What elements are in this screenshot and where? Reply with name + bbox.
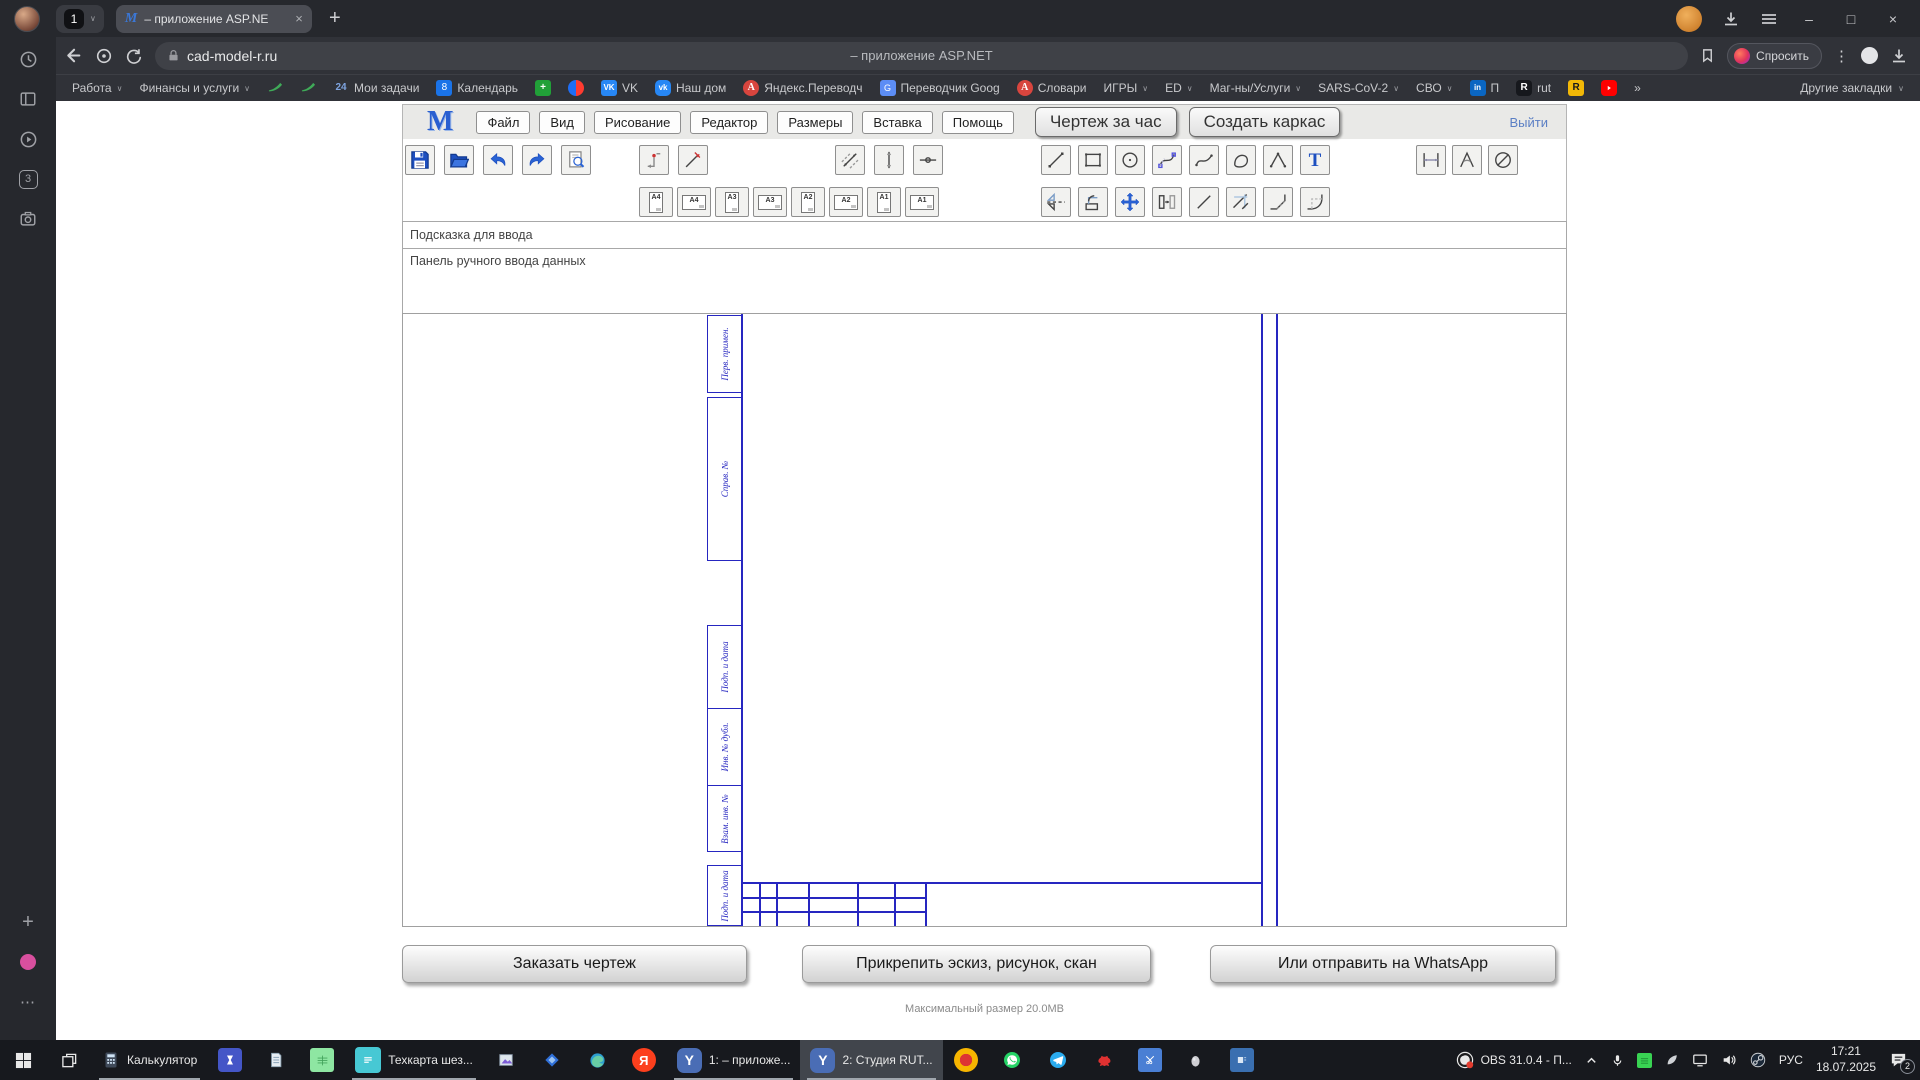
chevron-down-icon: ∨ (90, 14, 96, 23)
menu-редактор[interactable]: Редактор (690, 111, 768, 134)
tray-microphone-icon[interactable] (1611, 1054, 1624, 1067)
sidebar-panels-icon[interactable] (19, 85, 37, 113)
bookmark-item[interactable]: VKVK (601, 80, 638, 96)
bookmark-label: SARS-CoV-2 (1318, 81, 1388, 95)
tray-volume-icon[interactable] (1721, 1052, 1737, 1068)
taskbar-sheet-green-button[interactable] (299, 1040, 345, 1080)
bookmark-item[interactable]: + (535, 80, 551, 96)
taskbar-ybrowser-window[interactable]: Y2: Студия RUT... (800, 1040, 942, 1080)
bookmark-label: ED (1165, 81, 1182, 95)
undo-icon[interactable] (483, 145, 513, 175)
bookmark-label: Мои задачи (354, 81, 419, 95)
bookmark-flag-icon[interactable] (1700, 48, 1715, 63)
frame-left-column-cell: Взам. инв. № (707, 785, 743, 852)
circle-icon[interactable] (1115, 145, 1145, 175)
green-swoosh-icon (300, 80, 316, 96)
save-icon[interactable] (405, 145, 435, 175)
calendar-icon: 8 (436, 80, 452, 96)
axis-vertical-icon[interactable] (874, 145, 904, 175)
taskbar-task-view-button[interactable] (46, 1040, 92, 1080)
order-drawing-button[interactable]: Заказать чертеж (402, 945, 747, 983)
li-icon: in (1470, 80, 1486, 96)
site-favicon-icon: M (125, 12, 137, 26)
system-tray: OBS 31.0.4 - П... РУС 17:21 18.07.2025 2 (1456, 1040, 1920, 1080)
edit-tools (1041, 187, 1330, 217)
new-tab-button[interactable]: + (322, 7, 348, 30)
menu-hamburger-icon[interactable] (1760, 10, 1778, 28)
vk2-icon: vk (655, 80, 671, 96)
app-action-buttons: Чертеж за часСоздать каркас (1023, 107, 1340, 137)
url-field[interactable]: cad-model-r.ru – приложение ASP.NET (155, 42, 1688, 70)
vk-icon: VK (601, 80, 617, 96)
frame-line (1276, 314, 1278, 926)
redo-icon[interactable] (522, 145, 552, 175)
tab-close-icon[interactable]: × (295, 11, 303, 26)
address-bar: cad-model-r.ru – приложение ASP.NET Спро… (56, 37, 1920, 74)
frame-cell-label: Подп. и дата (720, 641, 730, 692)
frame-line (741, 882, 1263, 884)
bookmark-item[interactable]: СВО∨ (1416, 81, 1452, 95)
frame-line (857, 884, 859, 926)
chevron-down-icon: ∨ (1393, 84, 1399, 93)
open-icon[interactable] (444, 145, 474, 175)
taskbar-window-label: Техкарта шез... (388, 1053, 473, 1067)
taskbar: КалькуляторТехкарта шез...ЯY1: – приложе… (0, 1040, 1920, 1080)
chevron-down-icon: ∨ (1447, 84, 1453, 93)
cad-app: M ФайлВидРисованиеРедакторРазмерыВставка… (402, 104, 1567, 1034)
bookmark-label: Финансы и услуги (139, 81, 239, 95)
text-icon[interactable]: T (1300, 145, 1330, 175)
offset-icon[interactable] (1152, 187, 1182, 217)
kebab-menu-icon[interactable]: ⋮ (1834, 47, 1849, 65)
dim-diameter-icon[interactable] (1488, 145, 1518, 175)
bezier-icon[interactable] (1152, 145, 1182, 175)
segment-icon[interactable] (1189, 187, 1219, 217)
frame-line (741, 314, 743, 926)
taskbar-diamond-blue-button[interactable] (529, 1040, 575, 1080)
max-size-note: Максимальный размер 20.0МВ (402, 1003, 1567, 1015)
entry-tools (639, 145, 708, 175)
bookmark-label: Наш дом (676, 81, 726, 95)
fillet-icon[interactable] (1300, 187, 1330, 217)
dim-aligned-icon[interactable] (835, 145, 865, 175)
dim-tools (1416, 145, 1518, 175)
paper-a1-landscape-button[interactable]: A1 (905, 187, 939, 217)
window-minimize-button[interactable]: – (1798, 11, 1820, 27)
spline-icon[interactable] (1189, 145, 1219, 175)
tray-chevron-up-icon[interactable] (1585, 1054, 1598, 1067)
frame-left-column-cell: Перв. примен. (707, 315, 743, 393)
manual-input-panel[interactable]: Панель ручного ввода данных (402, 248, 1567, 314)
obs-icon (1456, 1051, 1474, 1069)
chevron-down-icon: ∨ (1295, 84, 1301, 93)
bookmark-item[interactable]: 8Календарь (436, 80, 518, 96)
bookmark-item[interactable] (300, 80, 316, 96)
taskbar-apps: КалькуляторТехкарта шез...ЯY1: – приложе… (0, 1040, 1265, 1080)
frame-line (1261, 314, 1263, 926)
create-frame-button[interactable]: Создать каркас (1189, 107, 1341, 137)
taskbar-clock[interactable]: 17:21 18.07.2025 (1816, 1044, 1876, 1075)
rect-icon[interactable] (1078, 145, 1108, 175)
ya-icon: A (743, 80, 759, 96)
logout-link[interactable]: Выйти (1510, 115, 1549, 130)
bookmark-label: Маг-ны/Услуги (1210, 81, 1291, 95)
polyline-icon[interactable] (1263, 145, 1293, 175)
browser-sidebar: 3+⋯ (0, 37, 56, 1040)
back-icon[interactable] (62, 45, 83, 66)
attach-sketch-button[interactable]: Прикрепить эскиз, рисунок, скан (802, 945, 1151, 983)
taskbar-music-orange-button[interactable] (943, 1040, 989, 1080)
sidebar-tab-counter-icon[interactable]: 3 (19, 165, 38, 193)
app-top-block: M ФайлВидРисованиеРедакторРазмерыВставка… (402, 104, 1567, 222)
app-header: M ФайлВидРисованиеРедакторРазмерыВставка… (403, 105, 1566, 139)
footer-buttons: Заказать чертеж Прикрепить эскиз, рисуно… (402, 945, 1567, 985)
sidebar-more-icon[interactable]: ⋯ (20, 988, 36, 1016)
chevron-down-icon: ∨ (1187, 84, 1193, 93)
b24-icon: 24 (333, 80, 349, 96)
window-close-button[interactable]: × (1882, 11, 1904, 27)
line-entry-icon[interactable] (678, 145, 708, 175)
tab-title: – приложение ASP.NE (144, 12, 288, 26)
frame-line (741, 897, 927, 899)
drawing-frame: Перв. примен.Справ. №Подп. и датаИнв. № … (403, 314, 1566, 926)
bookmark-label: ИГРЫ (1103, 81, 1137, 95)
bookmarks-list: Работа∨Финансы и услуги∨24Мои задачи8Кал… (72, 80, 1786, 96)
paper-a4-portrait-button[interactable]: A4 (639, 187, 673, 217)
mirror-icon[interactable] (1041, 187, 1071, 217)
bookmark-item[interactable]: Маг-ны/Услуги∨ (1210, 81, 1302, 95)
other-bookmarks-button[interactable]: Другие закладки ∨ (1800, 81, 1904, 95)
bookmark-item[interactable]: GПереводчик Goog (880, 80, 1000, 96)
refresh-icon[interactable] (125, 47, 143, 65)
point-entry-icon[interactable] (639, 145, 669, 175)
sidebar-music-dot-icon[interactable] (20, 948, 36, 976)
assistant-orb-icon (1734, 48, 1750, 64)
tab-group-count: 1 (64, 9, 84, 29)
frame-left-column-cell: Инв. № дубл. (707, 708, 743, 786)
bookmark-item[interactable] (1601, 80, 1617, 96)
frame-cell-label: Подп. и дата (720, 870, 730, 921)
taskbar-whatsapp-button[interactable] (989, 1040, 1035, 1080)
move-icon[interactable] (1115, 187, 1145, 217)
frame-cell-label: Справ. № (720, 461, 730, 497)
page-title: – приложение ASP.NET (155, 48, 1688, 63)
green-plus-icon: + (535, 80, 551, 96)
browser-tab[interactable]: M – приложение ASP.NE × (116, 5, 312, 33)
app-menu: ФайлВидРисованиеРедакторРазмерыВставкаПо… (476, 111, 1014, 134)
mail-circle-icon (568, 80, 584, 96)
taskbar-notepad-button[interactable] (253, 1040, 299, 1080)
taskbar-snip-blue-button[interactable] (1127, 1040, 1173, 1080)
frame-line (759, 884, 761, 926)
clock-date: 18.07.2025 (1816, 1060, 1876, 1076)
paper-a3-portrait-button[interactable]: A3 (715, 187, 749, 217)
send-whatsapp-button[interactable]: Или отправить на WhatsApp (1210, 945, 1556, 983)
rdark-icon: R (1516, 80, 1532, 96)
protect-icon[interactable] (95, 47, 113, 65)
frame-line (776, 884, 778, 926)
taskbar-edge-button[interactable] (575, 1040, 621, 1080)
sidebar-history-icon[interactable] (19, 45, 38, 73)
rotate-copy-icon[interactable] (1078, 187, 1108, 217)
language-indicator[interactable]: РУС (1779, 1053, 1803, 1067)
taskbar-telegram-button[interactable] (1035, 1040, 1081, 1080)
bookmark-item[interactable]: inП (1470, 80, 1500, 96)
chamfer-icon[interactable] (1263, 187, 1293, 217)
dim-horizontal-icon[interactable] (1416, 145, 1446, 175)
taskbar-window-label: 2: Студия RUT... (842, 1053, 932, 1067)
bookmark-item[interactable]: R (1568, 80, 1584, 96)
trim-icon[interactable] (1226, 187, 1256, 217)
browser-account-avatar[interactable] (1676, 6, 1702, 32)
hint-bar: Подсказка для ввода (402, 221, 1567, 249)
taskbar-window-label: Калькулятор (127, 1053, 197, 1067)
bookmark-label: » (1634, 81, 1641, 95)
menu-рисование[interactable]: Рисование (594, 111, 681, 134)
bookmark-item[interactable]: AЯндекс.Переводч (743, 80, 862, 96)
bookmark-label: VK (622, 81, 638, 95)
window-maximize-button[interactable]: □ (1840, 11, 1862, 27)
taskbar-yandex-button[interactable]: Я (621, 1040, 667, 1080)
axis-horizontal-icon[interactable] (913, 145, 943, 175)
notification-badge: 2 (1900, 1059, 1915, 1074)
bookmark-item[interactable]: Финансы и услуги∨ (139, 81, 250, 95)
tray-display-icon[interactable] (1692, 1052, 1708, 1068)
preview-icon[interactable] (561, 145, 591, 175)
bookmark-label: П (1491, 81, 1500, 95)
download-arrow-icon[interactable] (1890, 47, 1908, 65)
tab-group-button[interactable]: 1 ∨ (56, 5, 104, 33)
taskbar-calculator-window[interactable]: Калькулятор (92, 1040, 207, 1080)
dim-angle-icon[interactable] (1452, 145, 1482, 175)
bookmark-item[interactable]: Rrut (1516, 80, 1551, 96)
taskbar-egg-button[interactable] (1173, 1040, 1219, 1080)
paper-a1-portrait-button[interactable]: A1 (867, 187, 901, 217)
bookmark-item[interactable]: Работа∨ (72, 81, 122, 95)
taskbar-doc-teal-window[interactable]: Техкарта шез... (345, 1040, 483, 1080)
frame-cell-label: Взам. инв. № (720, 794, 730, 844)
paper-a2-landscape-button[interactable]: A2 (829, 187, 863, 217)
bookmark-label: Словари (1038, 81, 1087, 95)
sidebar-screenshot-icon[interactable] (19, 205, 37, 233)
taskbar-window-label: 1: – приложе... (709, 1053, 791, 1067)
drawing-per-hour-button[interactable]: Чертеж за час (1035, 107, 1177, 137)
bookmark-label: Работа (72, 81, 112, 95)
app-logo: M (427, 108, 453, 136)
bookmark-item[interactable]: 24Мои задачи (333, 80, 419, 96)
sidebar-plus-icon[interactable]: + (22, 908, 34, 936)
line-icon[interactable] (1041, 145, 1071, 175)
other-bookmarks-label: Другие закладки (1800, 81, 1892, 95)
frame-left-column-cell: Справ. № (707, 397, 743, 561)
closed-spline-icon[interactable] (1226, 145, 1256, 175)
taskbar-ybrowser-window[interactable]: Y1: – приложе... (667, 1040, 801, 1080)
draw-tools: T (1041, 145, 1330, 175)
menu-вставка[interactable]: Вставка (862, 111, 932, 134)
clock-time: 17:21 (1816, 1044, 1876, 1060)
gtr-icon: G (880, 80, 896, 96)
bookmark-label: Яндекс.Переводч (764, 81, 862, 95)
youtube-icon (1601, 80, 1617, 96)
menu-помощь[interactable]: Помощь (942, 111, 1014, 134)
ryellow-icon: R (1568, 80, 1584, 96)
browser-tab-bar: 1 ∨ M – приложение ASP.NE × + – □ × (0, 0, 1920, 37)
frame-line (894, 884, 896, 926)
taskbar-cards-blue-button[interactable] (1219, 1040, 1265, 1080)
paper-a3-landscape-button[interactable]: A3 (753, 187, 787, 217)
tray-leaf-icon[interactable] (1665, 1053, 1679, 1067)
sidebar-video-icon[interactable] (19, 125, 38, 153)
frame-line (808, 884, 810, 926)
url-text: cad-model-r.ru (187, 48, 277, 64)
frame-left-column-cell: Подп. и дата (707, 865, 743, 926)
ya-icon: A (1017, 80, 1033, 96)
menu-файл[interactable]: Файл (476, 111, 530, 134)
bookmark-item[interactable]: SARS-CoV-2∨ (1318, 81, 1399, 95)
chevron-down-icon: ∨ (244, 84, 250, 93)
taskbar-paint-button[interactable] (483, 1040, 529, 1080)
taskbar-hourglass-app-button[interactable] (207, 1040, 253, 1080)
chevron-down-icon: ∨ (117, 84, 123, 93)
bookmark-label: rut (1537, 81, 1551, 95)
extension-circle-icon[interactable] (1861, 47, 1878, 64)
tray-steam-icon[interactable] (1750, 1052, 1766, 1068)
tray-green-square-icon[interactable] (1637, 1053, 1652, 1068)
ask-label: Спросить (1756, 49, 1809, 63)
bookmark-item[interactable]: vkНаш дом (655, 80, 726, 96)
drawing-canvas[interactable]: Перв. примен.Справ. №Подп. и датаИнв. № … (402, 313, 1567, 927)
menu-размеры[interactable]: Размеры (777, 111, 853, 134)
ask-button[interactable]: Спросить (1727, 43, 1822, 69)
chevron-down-icon: ∨ (1142, 84, 1148, 93)
taskbar-red-creature-button[interactable] (1081, 1040, 1127, 1080)
frame-left-column-cell: Подп. и дата (707, 625, 743, 709)
bookmark-item[interactable]: ED∨ (1165, 81, 1193, 95)
frame-cell-label: Инв. № дубл. (720, 722, 730, 771)
frame-line (925, 884, 927, 926)
taskbar-obs-window[interactable]: OBS 31.0.4 - П... (1456, 1051, 1572, 1069)
chevron-down-icon: ∨ (1898, 84, 1904, 93)
bookmark-label: Переводчик Goog (901, 81, 1000, 95)
green-swoosh-icon (267, 80, 283, 96)
frame-line (741, 911, 927, 913)
obs-label: OBS 31.0.4 - П... (1481, 1053, 1572, 1067)
paper-a2-portrait-button[interactable]: A2 (791, 187, 825, 217)
bookmark-item[interactable] (267, 80, 283, 96)
bookmark-item[interactable]: ИГРЫ∨ (1103, 81, 1148, 95)
profile-avatar[interactable] (14, 6, 40, 32)
bookmarks-bar: Работа∨Финансы и услуги∨24Мои задачи8Кал… (56, 74, 1920, 101)
notification-center-button[interactable]: 2 (1889, 1051, 1908, 1070)
web-page: M ФайлВидРисованиеРедакторРазмерыВставка… (56, 101, 1920, 1040)
bookmark-label: Календарь (457, 81, 518, 95)
paper-tools: A4A4A3A3A2A2A1A1 (639, 187, 939, 217)
downloads-icon[interactable] (1722, 10, 1740, 28)
axis-tools (835, 145, 943, 175)
frame-cell-label: Перв. примен. (720, 327, 730, 380)
bookmark-item[interactable] (568, 80, 584, 96)
menu-вид[interactable]: Вид (539, 111, 585, 134)
bookmark-label: СВО (1416, 81, 1442, 95)
paper-a4-landscape-button[interactable]: A4 (677, 187, 711, 217)
bookmark-item[interactable]: » (1634, 81, 1641, 95)
taskbar-start-button[interactable] (0, 1040, 46, 1080)
bookmark-item[interactable]: AСловари (1017, 80, 1087, 96)
file-tools (405, 145, 591, 175)
lock-icon (167, 49, 180, 62)
tray-icons (1585, 1052, 1766, 1068)
